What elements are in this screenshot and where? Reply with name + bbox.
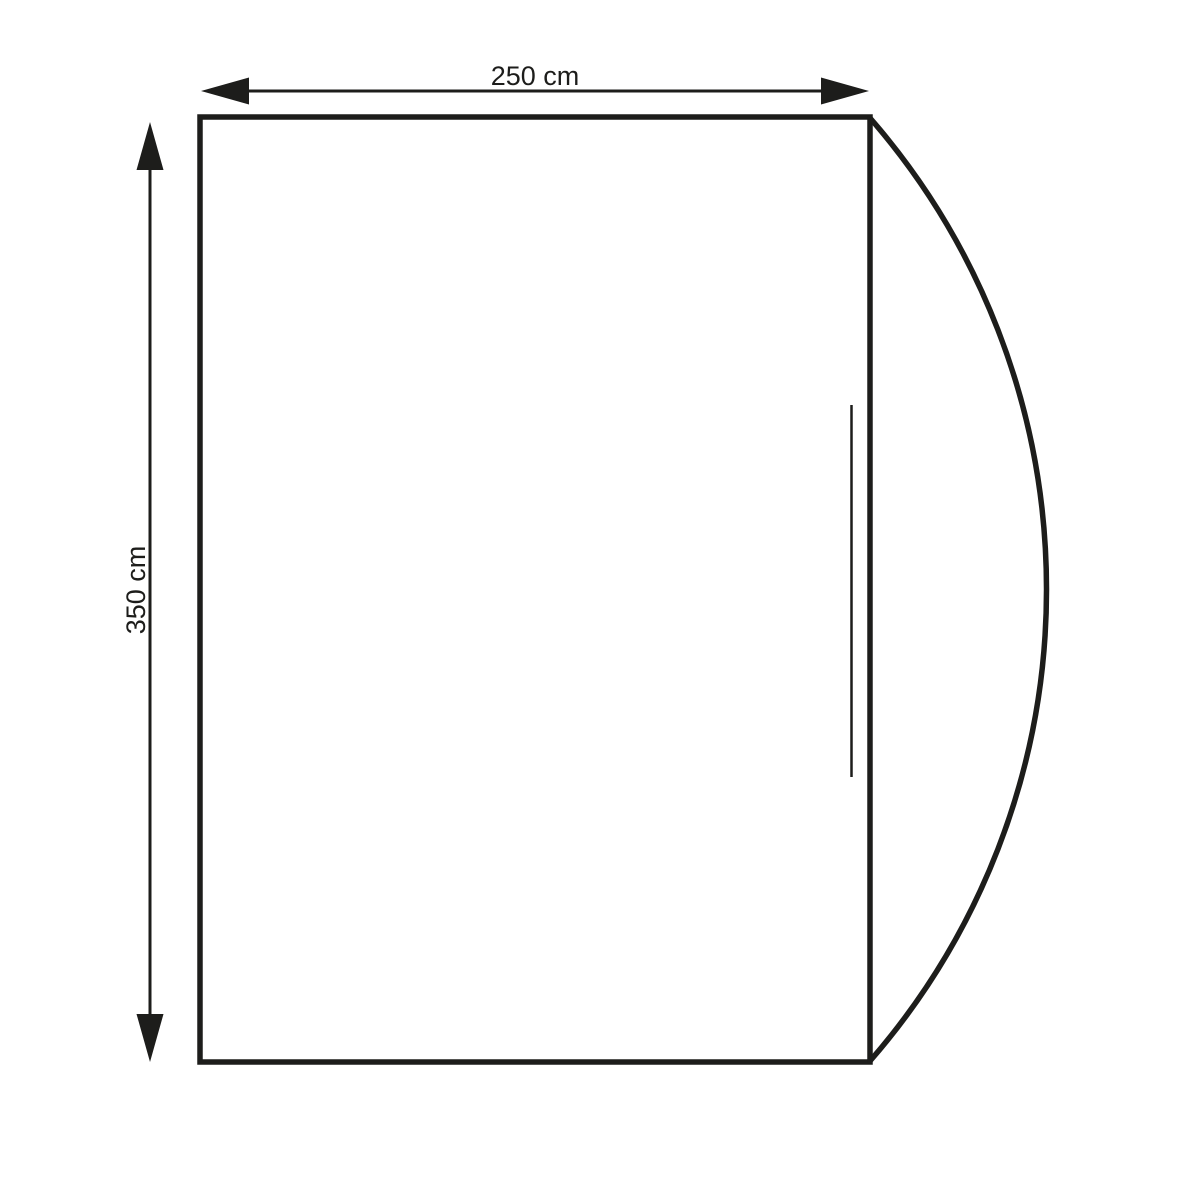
technical-drawing: 250 cm 350 cm <box>0 0 1181 1181</box>
width-dimension: 250 cm <box>201 61 869 105</box>
width-arrow-left-icon <box>201 78 249 105</box>
height-arrow-up-icon <box>137 122 164 170</box>
width-arrow-right-icon <box>821 78 869 105</box>
width-dimension-label: 250 cm <box>491 61 580 91</box>
cover-shape <box>200 117 1047 1062</box>
height-arrow-down-icon <box>137 1014 164 1062</box>
side-flap-arc <box>870 118 1047 1061</box>
cover-front-panel-outline <box>200 117 870 1062</box>
height-dimension-label: 350 cm <box>121 546 151 635</box>
diagram-canvas: 250 cm 350 cm <box>0 0 1181 1181</box>
height-dimension: 350 cm <box>121 122 164 1062</box>
